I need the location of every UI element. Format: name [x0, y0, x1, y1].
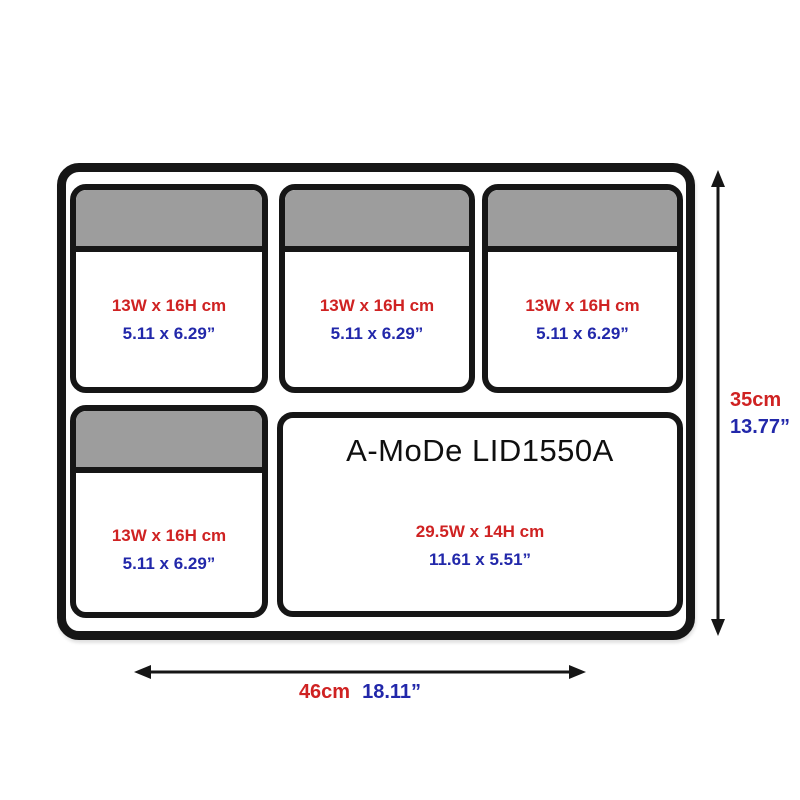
width-value-metric: 46cm	[299, 679, 350, 705]
pocket-size-metric: 13W x 16H cm	[112, 292, 226, 320]
pocket-flap	[488, 190, 677, 252]
pocket-size-imperial: 5.11 x 6.29”	[331, 320, 424, 348]
pocket-main: A-MoDe LID1550A 29.5W x 14H cm 11.61 x 5…	[277, 412, 683, 617]
pocket-top-left: 13W x 16H cm 5.11 x 6.29”	[70, 184, 268, 393]
pocket-flap	[76, 190, 262, 252]
product-title: A-MoDe LID1550A	[283, 432, 677, 470]
pocket-label-group: 13W x 16H cm 5.11 x 6.29”	[76, 252, 262, 387]
width-dimension-labels: 46cm18.11”	[134, 679, 586, 705]
pocket-label-group: 13W x 16H cm 5.11 x 6.29”	[488, 252, 677, 387]
pocket-flap	[285, 190, 469, 252]
pocket-size-imperial: 5.11 x 6.29”	[123, 320, 216, 348]
pocket-size-imperial: 5.11 x 6.29”	[123, 550, 216, 578]
pocket-size-imperial: 5.11 x 6.29”	[536, 320, 629, 348]
pocket-label-group: 13W x 16H cm 5.11 x 6.29”	[285, 252, 469, 387]
height-dimension-labels: 35cm 13.77”	[730, 387, 790, 441]
height-dimension-arrow-icon	[704, 170, 732, 636]
pocket-size-metric: 13W x 16H cm	[320, 292, 434, 320]
pocket-top-middle: 13W x 16H cm 5.11 x 6.29”	[279, 184, 475, 393]
pocket-size-metric: 29.5W x 14H cm	[416, 518, 545, 546]
pocket-bottom-left: 13W x 16H cm 5.11 x 6.29”	[70, 405, 268, 618]
pocket-size-metric: 13W x 16H cm	[112, 522, 226, 550]
pocket-size-metric: 13W x 16H cm	[525, 292, 639, 320]
height-value-imperial: 13.77”	[730, 414, 790, 441]
height-value-metric: 35cm	[730, 387, 790, 414]
pocket-label-group: 29.5W x 14H cm 11.61 x 5.51”	[283, 518, 677, 574]
product-dimension-diagram: 13W x 16H cm 5.11 x 6.29” 13W x 16H cm 5…	[0, 0, 800, 800]
pocket-top-right: 13W x 16H cm 5.11 x 6.29”	[482, 184, 683, 393]
pocket-size-imperial: 11.61 x 5.51”	[429, 546, 531, 574]
pocket-flap	[76, 411, 262, 473]
pocket-label-group: 13W x 16H cm 5.11 x 6.29”	[76, 473, 262, 612]
width-value-imperial: 18.11”	[362, 679, 421, 705]
